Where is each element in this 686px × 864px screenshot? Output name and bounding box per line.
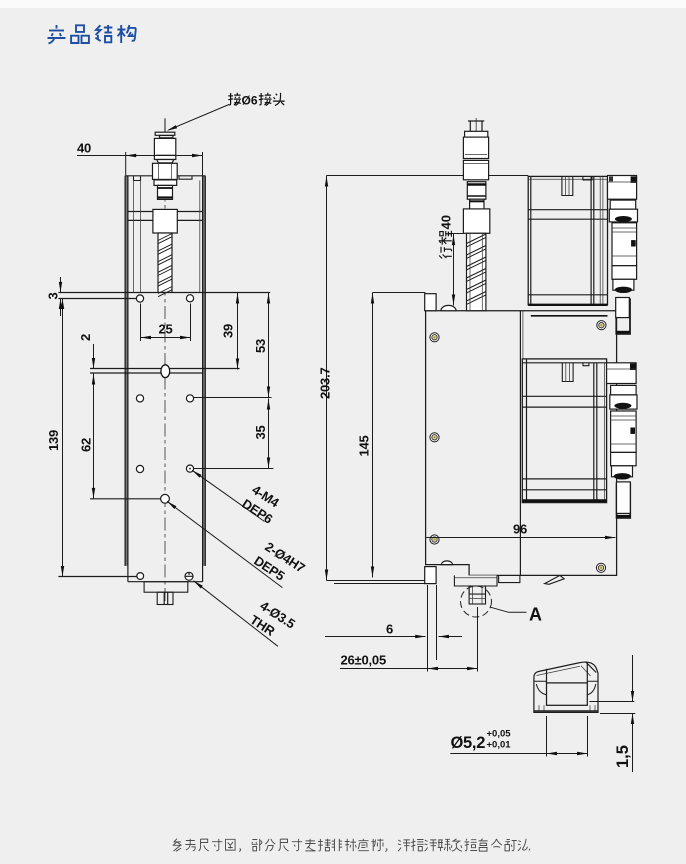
svg-text:25: 25 — [159, 322, 173, 337]
svg-text:A: A — [529, 605, 542, 625]
svg-text:+0,01: +0,01 — [487, 740, 512, 751]
svg-text:40: 40 — [438, 215, 453, 229]
svg-text:Ø5,2: Ø5,2 — [451, 734, 486, 752]
svg-text:26±0,05: 26±0,05 — [341, 653, 387, 668]
svg-text:2: 2 — [78, 334, 93, 341]
svg-text:53: 53 — [253, 339, 268, 353]
svg-text:+0,05: +0,05 — [487, 729, 512, 740]
svg-text:35: 35 — [253, 425, 268, 439]
svg-text:96: 96 — [513, 522, 527, 537]
svg-text:3: 3 — [46, 292, 61, 299]
svg-text:203.7: 203.7 — [318, 367, 333, 399]
svg-text:Ø6: Ø6 — [242, 94, 258, 108]
svg-text:145: 145 — [357, 435, 372, 456]
svg-text:6: 6 — [386, 622, 393, 637]
svg-text:139: 139 — [46, 430, 61, 451]
svg-text:39: 39 — [221, 324, 236, 338]
svg-text:1,5: 1,5 — [614, 745, 632, 768]
svg-text:40: 40 — [77, 141, 91, 156]
svg-text:62: 62 — [79, 438, 94, 452]
